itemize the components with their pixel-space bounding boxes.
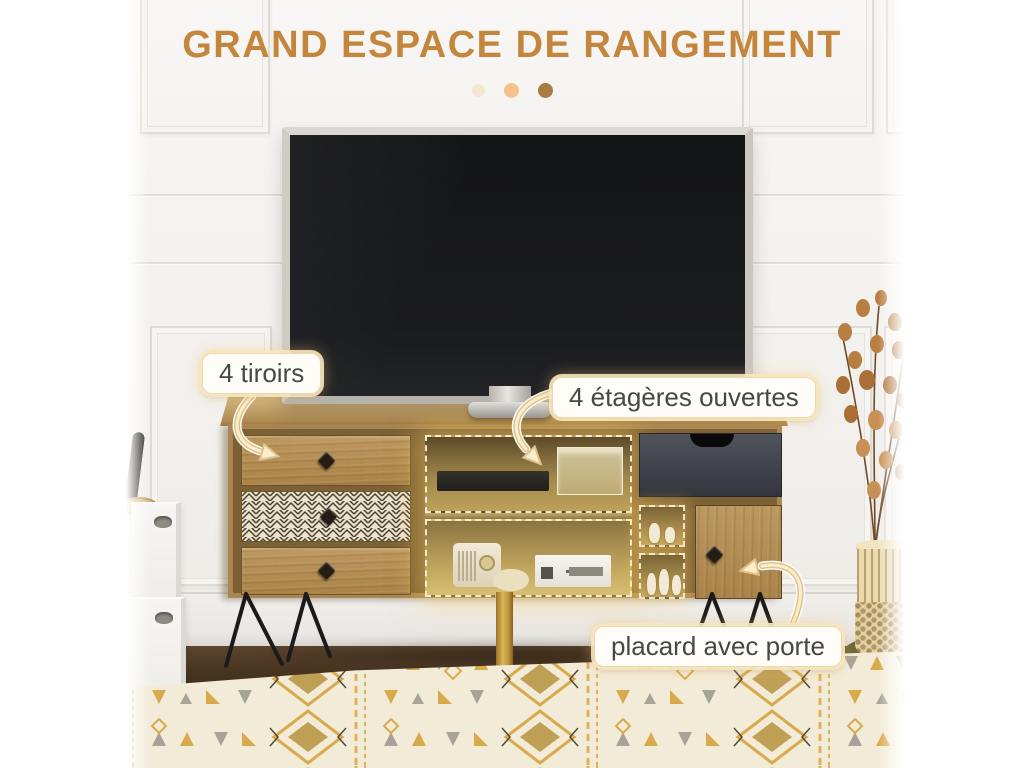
tv — [282, 127, 753, 404]
small-shelf-top — [639, 505, 685, 547]
product-showcase-image: GRAND ESPACE DE RANGEMENT 4 tiroirs 4 ét… — [0, 0, 1024, 768]
glass-box — [557, 447, 623, 495]
drawer-3 — [241, 547, 411, 595]
dvd-player — [437, 471, 549, 491]
gold-center-leg — [496, 592, 513, 668]
drawer-knob — [317, 561, 335, 579]
callout-drawers: 4 tiroirs — [202, 353, 321, 394]
open-shelf-top — [425, 435, 632, 513]
oval-box — [493, 569, 529, 591]
media-receiver — [535, 555, 611, 587]
box-handle-cutout — [155, 612, 173, 624]
tv-stand — [228, 424, 782, 598]
drawer-handle-cutout — [690, 434, 734, 447]
drawer-4-dark — [639, 433, 782, 497]
tv-stand-foot — [468, 402, 552, 418]
door-knob — [705, 545, 723, 563]
tv-screen — [290, 135, 745, 396]
open-shelves — [425, 435, 632, 597]
callout-cabinet: placard avec porte — [594, 626, 842, 667]
carousel-dots — [0, 83, 1024, 98]
cabinet-door — [695, 505, 782, 599]
wall-panel-molding — [742, 0, 874, 134]
vase — [665, 527, 675, 543]
carousel-dot-2 — [504, 83, 519, 98]
wall-panel-molding — [140, 0, 270, 134]
right-white-fade — [878, 0, 1024, 768]
open-shelf-bottom — [425, 519, 632, 597]
box-handle-cutout — [154, 516, 172, 528]
left-white-fade — [0, 0, 150, 768]
right-section — [639, 433, 782, 599]
drawer-1 — [241, 435, 411, 486]
drawer-knob — [317, 451, 335, 469]
carousel-dot-3 — [538, 83, 553, 98]
carousel-dot-1 — [472, 84, 485, 97]
drawer-2-herringbone — [241, 491, 411, 542]
page-title: GRAND ESPACE DE RANGEMENT — [0, 24, 1024, 67]
callout-shelves: 4 étagères ouvertes — [552, 377, 816, 418]
vase — [649, 523, 660, 543]
